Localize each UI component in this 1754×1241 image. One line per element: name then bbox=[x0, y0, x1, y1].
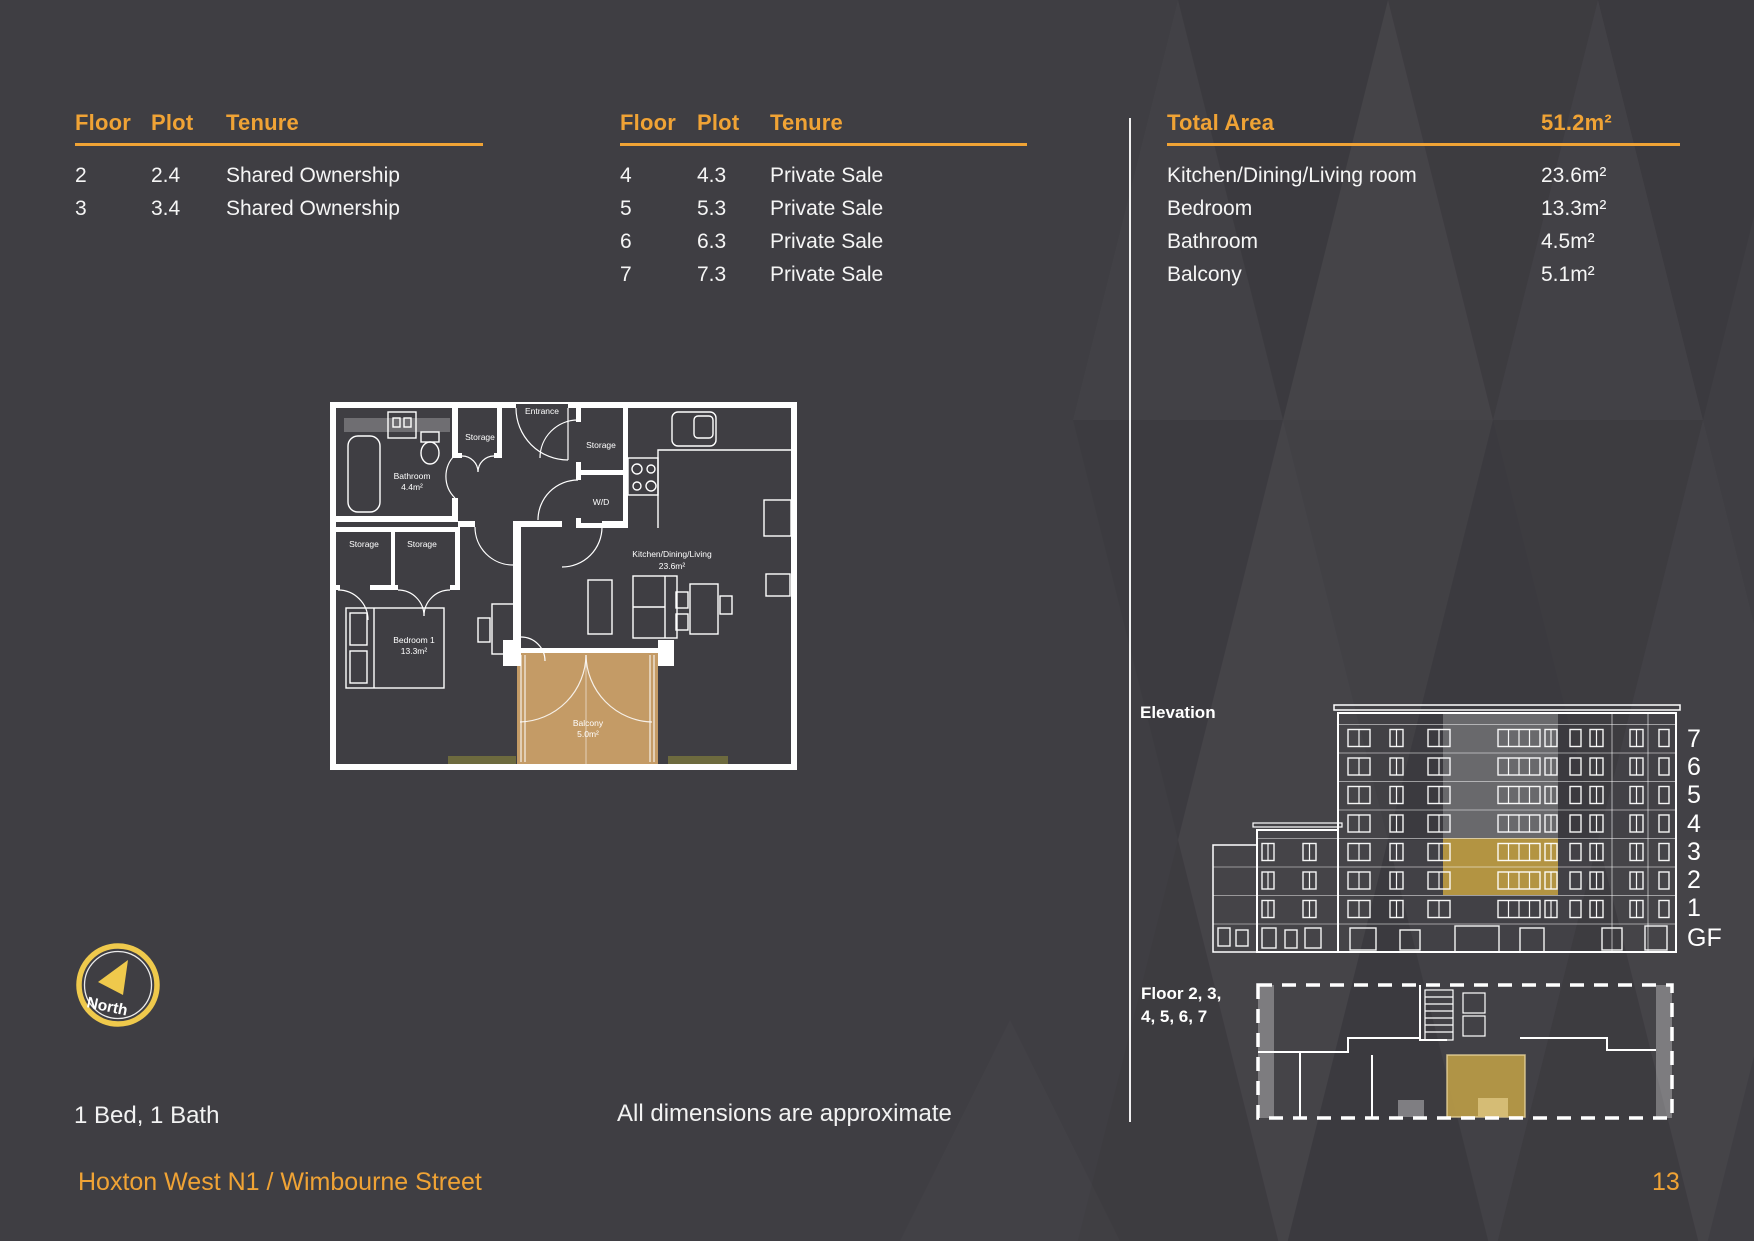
entrance-label: Entrance bbox=[525, 406, 559, 416]
floor-label-6: 6 bbox=[1687, 753, 1701, 781]
room-label: Balcony bbox=[1167, 258, 1541, 291]
col-header-tenure: Tenure bbox=[226, 110, 483, 136]
floor-cell: 4 bbox=[620, 159, 697, 192]
tenure-cell: Shared Ownership bbox=[226, 159, 483, 192]
table-row: Balcony 5.1m² bbox=[1167, 258, 1680, 291]
col-header-floor: Floor bbox=[75, 110, 151, 136]
floor-cell: 7 bbox=[620, 258, 697, 291]
storage-label: Storage bbox=[407, 539, 437, 549]
building-elevation: 7 6 5 4 3 2 1 GF bbox=[1130, 640, 1754, 970]
room-area-value: 23.6m² bbox=[1541, 159, 1680, 192]
storage-label: Storage bbox=[465, 432, 495, 442]
total-area-table: Total Area 51.2m² Kitchen/Dining/Living … bbox=[1167, 110, 1680, 291]
total-area-header: Total Area bbox=[1167, 110, 1541, 136]
floor-label-7: 7 bbox=[1687, 725, 1701, 753]
kitchen-label: Kitchen/Dining/Living bbox=[632, 549, 712, 559]
wd-label: W/D bbox=[593, 497, 610, 507]
table-header: Total Area 51.2m² bbox=[1167, 110, 1680, 146]
floor-cell: 6 bbox=[620, 225, 697, 258]
storage-label: Storage bbox=[349, 539, 379, 549]
storage-label: Storage bbox=[586, 440, 616, 450]
floor-cell: 5 bbox=[620, 192, 697, 225]
table-row: Bathroom 4.5m² bbox=[1167, 225, 1680, 258]
plot-cell: 3.4 bbox=[151, 192, 226, 225]
col-header-plot: Plot bbox=[151, 110, 226, 136]
tenure-cell: Private Sale bbox=[770, 192, 1027, 225]
elevation-title: Elevation bbox=[1140, 703, 1216, 723]
table-row: 4 4.3 Private Sale bbox=[620, 159, 1027, 192]
table-header: Floor Plot Tenure bbox=[75, 110, 483, 146]
tenure-cell: Private Sale bbox=[770, 258, 1027, 291]
floor-label-gf: GF bbox=[1687, 924, 1722, 952]
north-compass-icon: North bbox=[71, 941, 166, 1036]
plot-cell: 6.3 bbox=[697, 225, 770, 258]
table-body: Kitchen/Dining/Living room 23.6m² Bedroo… bbox=[1167, 159, 1680, 291]
table-row: 6 6.3 Private Sale bbox=[620, 225, 1027, 258]
plot-cell: 2.4 bbox=[151, 159, 226, 192]
room-area-value: 13.3m² bbox=[1541, 192, 1680, 225]
tenure-table-shared-ownership: Floor Plot Tenure 2 2.4 Shared Ownership… bbox=[75, 110, 483, 225]
north-arrow bbox=[98, 960, 128, 995]
tenure-cell: Private Sale bbox=[770, 225, 1027, 258]
bathroom-area-label: 4.4m² bbox=[401, 482, 423, 492]
plot-cell: 7.3 bbox=[697, 258, 770, 291]
floor-cell: 3 bbox=[75, 192, 151, 225]
table-header: Floor Plot Tenure bbox=[620, 110, 1027, 146]
balcony-area-label: 5.0m² bbox=[577, 729, 599, 739]
brochure-page: { "colors": { "background": "#3F3E43", "… bbox=[0, 0, 1754, 1241]
floor-label-2: 2 bbox=[1687, 866, 1701, 894]
floor-label-3: 3 bbox=[1687, 838, 1701, 866]
elevation-floor-labels: 7 6 5 4 3 2 1 GF bbox=[1687, 725, 1722, 952]
tenure-cell: Shared Ownership bbox=[226, 192, 483, 225]
page-number: 13 bbox=[1652, 1168, 1680, 1197]
table-row: 5 5.3 Private Sale bbox=[620, 192, 1027, 225]
total-area-value: 51.2m² bbox=[1541, 110, 1680, 136]
keyplan-title: Floor 2, 3, 4, 5, 6, 7 bbox=[1141, 982, 1221, 1028]
elevation-windows bbox=[1213, 725, 1676, 953]
room-area-value: 4.5m² bbox=[1541, 225, 1680, 258]
floor-label-5: 5 bbox=[1687, 781, 1701, 809]
table-row: 2 2.4 Shared Ownership bbox=[75, 159, 483, 192]
project-name: Hoxton West N1 / Wimbourne Street bbox=[78, 1168, 482, 1197]
plot-cell: 4.3 bbox=[697, 159, 770, 192]
plot-cell: 5.3 bbox=[697, 192, 770, 225]
table-row: 3 3.4 Shared Ownership bbox=[75, 192, 483, 225]
bedroom-area-label: 13.3m² bbox=[401, 646, 428, 656]
plan-doors bbox=[338, 408, 602, 661]
bathroom-label: Bathroom bbox=[394, 471, 431, 481]
bed-bath-summary: 1 Bed, 1 Bath bbox=[74, 1102, 219, 1130]
floor-cell: 2 bbox=[75, 159, 151, 192]
bedroom-label: Bedroom 1 bbox=[393, 635, 435, 645]
kitchen-area-label: 23.6m² bbox=[659, 561, 686, 571]
tenure-cell: Private Sale bbox=[770, 159, 1027, 192]
table-body: 2 2.4 Shared Ownership 3 3.4 Shared Owne… bbox=[75, 159, 483, 225]
floor-label-4: 4 bbox=[1687, 810, 1701, 838]
table-row: Bedroom 13.3m² bbox=[1167, 192, 1680, 225]
dimensions-disclaimer: All dimensions are approximate bbox=[617, 1100, 952, 1128]
balcony-label: Balcony bbox=[573, 718, 604, 728]
room-label: Kitchen/Dining/Living room bbox=[1167, 159, 1541, 192]
keyplan-title-line2: 4, 5, 6, 7 bbox=[1141, 1005, 1221, 1028]
tenure-table-private-sale: Floor Plot Tenure 4 4.3 Private Sale 5 5… bbox=[620, 110, 1027, 291]
room-area-value: 5.1m² bbox=[1541, 258, 1680, 291]
table-row: Kitchen/Dining/Living room 23.6m² bbox=[1167, 159, 1680, 192]
floor-label-1: 1 bbox=[1687, 894, 1701, 922]
room-label: Bedroom bbox=[1167, 192, 1541, 225]
col-header-floor: Floor bbox=[620, 110, 697, 136]
floor-key-plan bbox=[1130, 960, 1754, 1160]
col-header-tenure: Tenure bbox=[770, 110, 1027, 136]
apartment-floor-plan: Entrance Storage Storage Storage Storage… bbox=[328, 398, 803, 770]
col-header-plot: Plot bbox=[697, 110, 770, 136]
keyplan-title-line1: Floor 2, 3, bbox=[1141, 982, 1221, 1005]
table-body: 4 4.3 Private Sale 5 5.3 Private Sale 6 … bbox=[620, 159, 1027, 291]
table-row: 7 7.3 Private Sale bbox=[620, 258, 1027, 291]
room-label: Bathroom bbox=[1167, 225, 1541, 258]
